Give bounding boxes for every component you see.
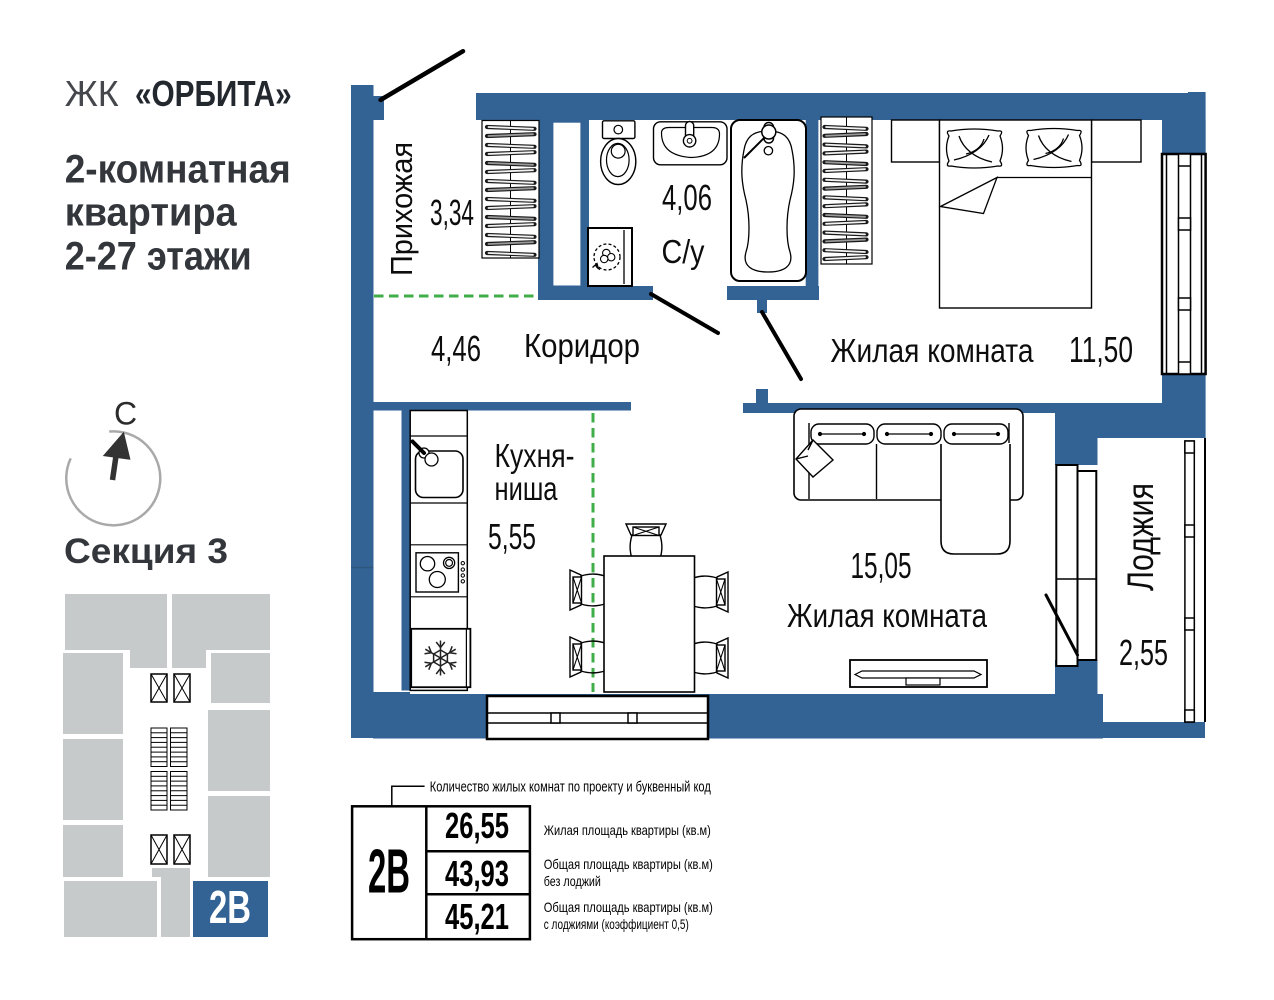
- svg-text:без лоджий: без лоджий: [544, 873, 601, 889]
- svg-text:11,50: 11,50: [1069, 329, 1133, 370]
- svg-text:квартира: квартира: [65, 191, 238, 235]
- svg-text:5,55: 5,55: [488, 516, 536, 557]
- svg-text:Количество жилых комнат по про: Количество жилых комнат по проекту и бук…: [430, 780, 711, 796]
- svg-text:2В: 2В: [209, 881, 251, 933]
- svg-text:С: С: [114, 395, 137, 431]
- svg-text:Общая площадь квартиры (кв.м): Общая площадь квартиры (кв.м): [544, 856, 713, 872]
- svg-text:Жилая комната: Жилая комната: [787, 597, 988, 634]
- svg-text:4,46: 4,46: [431, 328, 481, 369]
- svg-text:3,34: 3,34: [430, 192, 474, 233]
- svg-text:45,21: 45,21: [445, 896, 509, 937]
- svg-text:Лоджия: Лоджия: [1120, 483, 1161, 591]
- svg-text:2-комнатная: 2-комнатная: [65, 147, 291, 191]
- svg-text:ЖК «ОРБИТА»: ЖК «ОРБИТА»: [65, 73, 292, 114]
- svg-text:4,06: 4,06: [662, 177, 712, 218]
- svg-text:Жилая комната: Жилая комната: [831, 332, 1035, 369]
- svg-text:Коридор: Коридор: [524, 327, 640, 364]
- svg-text:ниша: ниша: [495, 470, 558, 507]
- svg-text:Жилая площадь квартиры (кв.м): Жилая площадь квартиры (кв.м): [544, 822, 711, 838]
- svg-text:с лоджиями (коэффициент 0,5): с лоджиями (коэффициент 0,5): [544, 916, 689, 932]
- svg-text:С/у: С/у: [662, 233, 705, 270]
- svg-text:Кухня-: Кухня-: [495, 437, 575, 474]
- svg-text:2В: 2В: [368, 838, 410, 907]
- svg-text:2,55: 2,55: [1119, 632, 1168, 673]
- svg-text:2-27 этажи: 2-27 этажи: [65, 235, 252, 279]
- svg-text:15,05: 15,05: [851, 545, 912, 586]
- svg-text:26,55: 26,55: [445, 805, 509, 846]
- svg-text:43,93: 43,93: [445, 853, 509, 894]
- svg-text:Прихожая: Прихожая: [384, 142, 419, 276]
- svg-text:Секция 3: Секция 3: [64, 532, 228, 571]
- svg-text:Общая площадь квартиры (кв.м): Общая площадь квартиры (кв.м): [544, 899, 713, 915]
